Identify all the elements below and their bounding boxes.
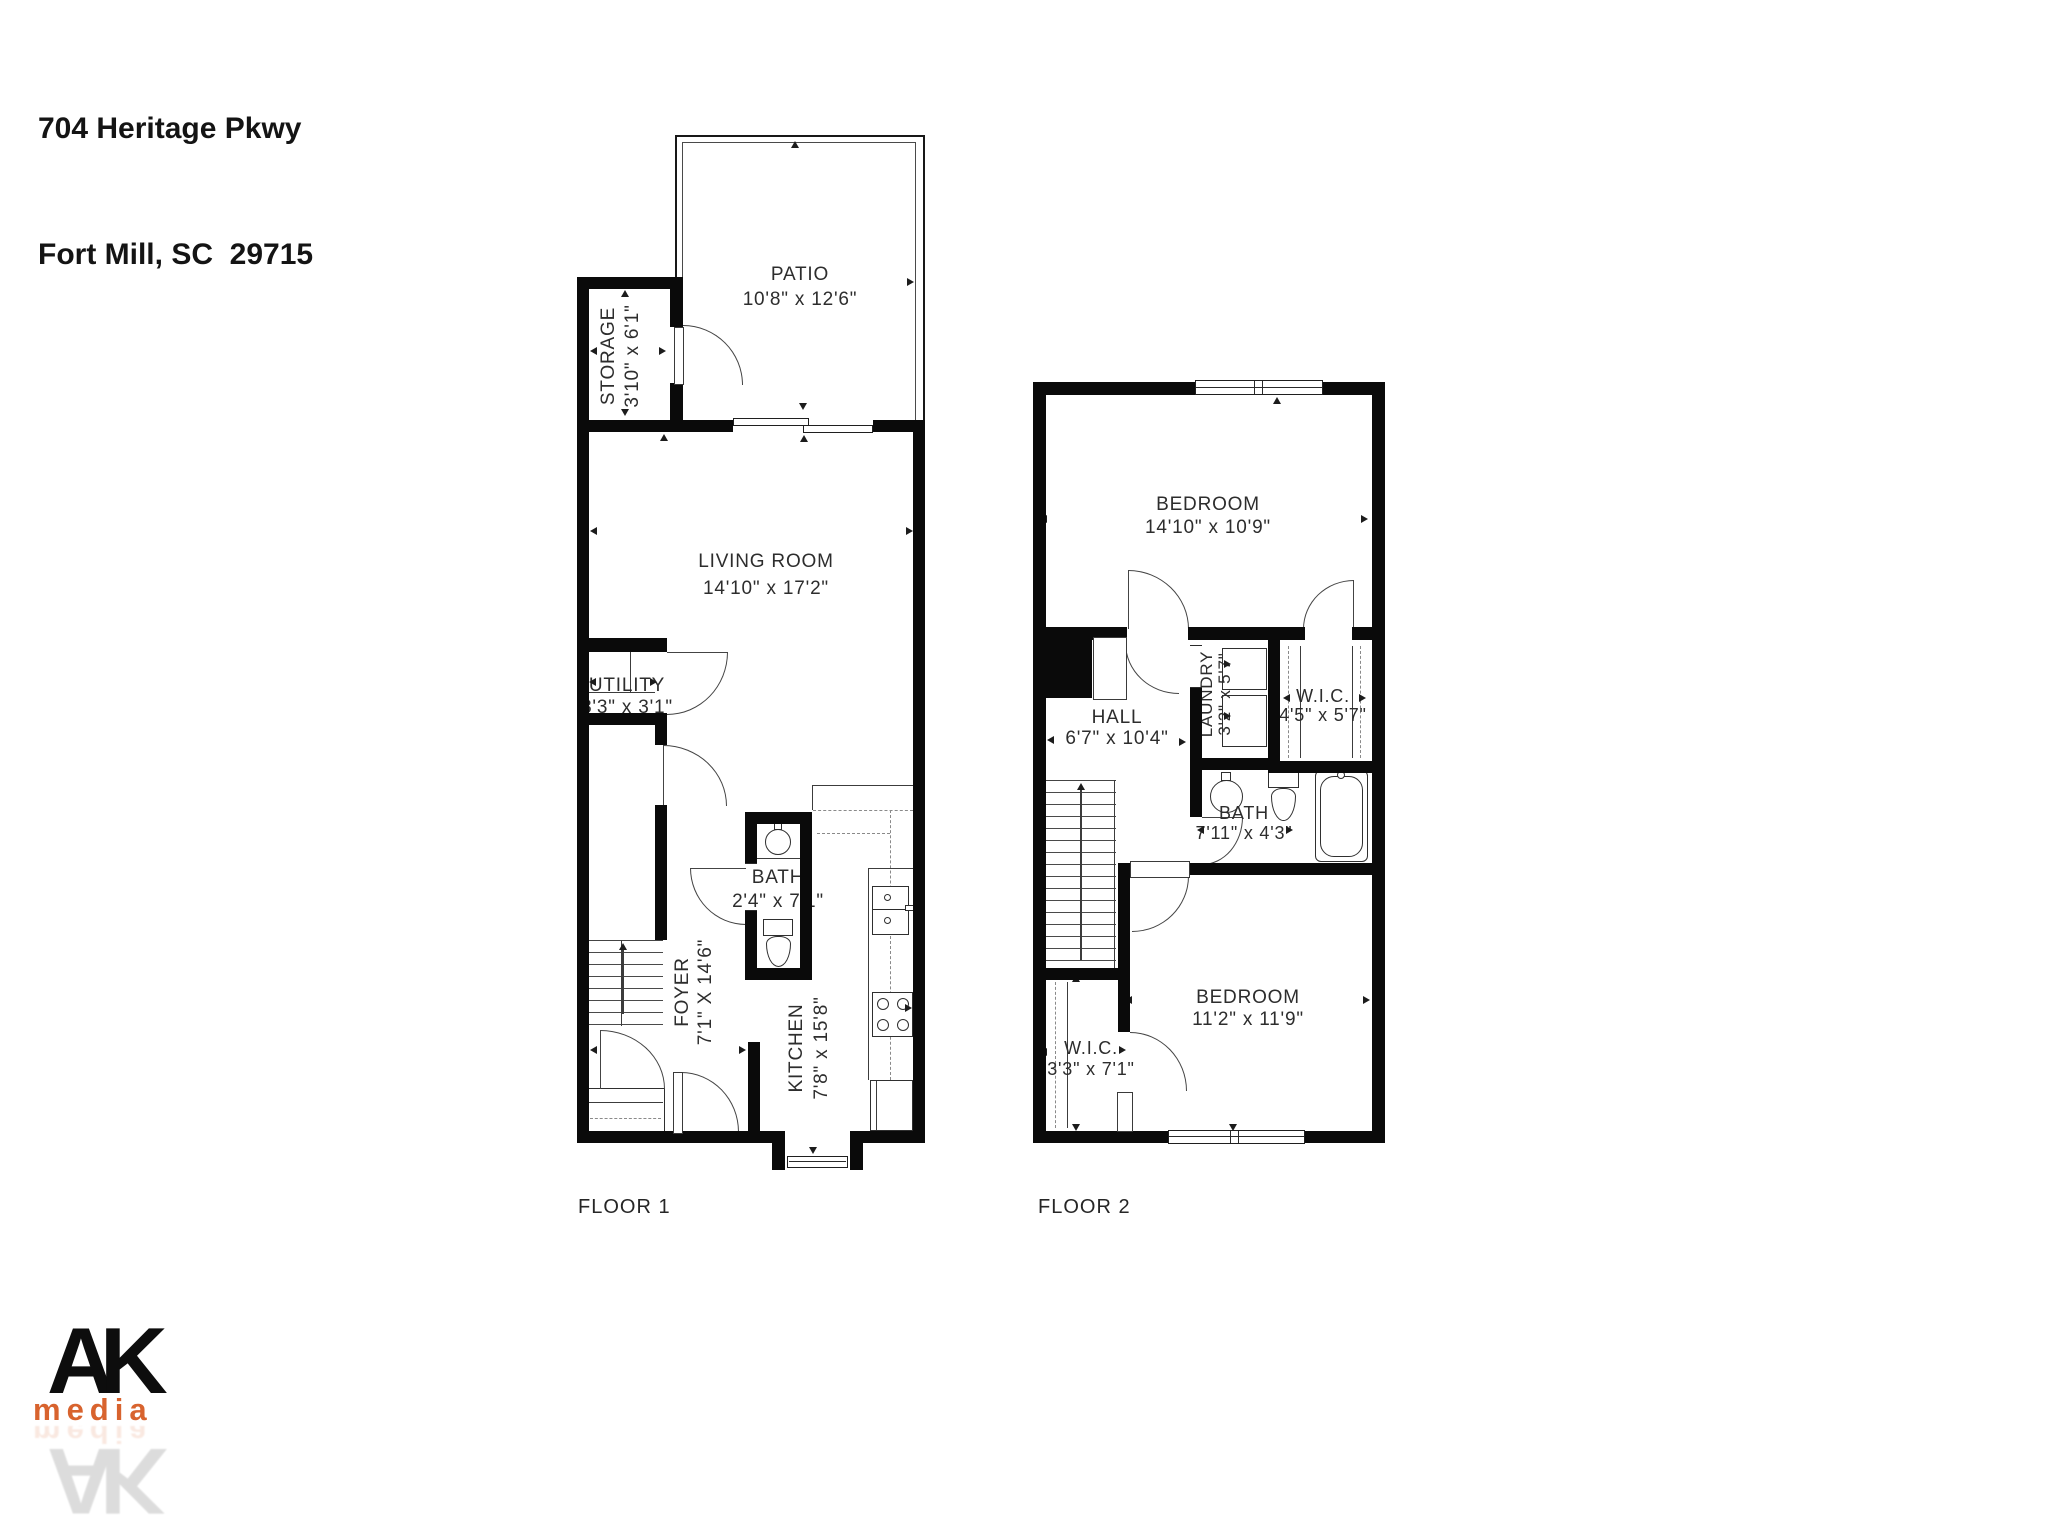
room-dims: 10'8" x 12'6"	[743, 287, 858, 312]
wall	[1305, 1131, 1385, 1143]
wall	[655, 713, 667, 745]
door-leaf	[673, 1072, 683, 1134]
stair-arrow-icon	[1077, 783, 1085, 790]
wall	[577, 277, 683, 289]
address-line2: Fort Mill, SC 29715	[38, 234, 313, 276]
wall	[745, 968, 812, 980]
dimension-arrow	[1273, 397, 1281, 404]
room-label-bath2: BATH 7'11" x 4'3"	[1196, 803, 1293, 843]
room-label-foyer: FOYER 7'1" X 14'6"	[671, 939, 717, 1045]
bathtub-inner	[1320, 776, 1363, 857]
door-leaf	[674, 327, 684, 385]
wall	[1352, 627, 1372, 640]
room-label-bedroom-bottom: BEDROOM 11'2" x 11'9"	[1192, 987, 1304, 1031]
door-arc	[1130, 1032, 1187, 1091]
wall-chase	[1046, 640, 1092, 698]
window-line	[1196, 387, 1322, 388]
window-mullion	[1262, 381, 1263, 394]
stair-arrow-icon	[619, 943, 627, 950]
dimension-arrow	[1179, 738, 1186, 746]
door-jamb	[745, 863, 757, 864]
wall	[577, 420, 733, 432]
floor1-label: FLOOR 1	[578, 1196, 671, 1219]
wall	[577, 277, 589, 1143]
wall	[1190, 758, 1280, 770]
window-mullion	[1238, 1131, 1239, 1143]
dimension-arrow	[590, 1046, 597, 1054]
logo-word-reflection: media	[33, 1426, 153, 1448]
room-dims: 7'1" X 14'6"	[694, 939, 717, 1045]
room-dims: 4'5" x 5'7"	[1279, 706, 1367, 725]
door-arc	[1125, 643, 1179, 694]
wall	[745, 911, 757, 968]
dimension-arrow	[590, 527, 597, 535]
wall	[1268, 640, 1280, 773]
wall	[1188, 863, 1372, 875]
room-label-storage: STORAGE 3'10" x 6'1"	[597, 304, 645, 407]
door-jamb	[1190, 645, 1202, 646]
dimension-arrow	[799, 403, 807, 410]
room-dims: 3'3" x 7'1"	[1047, 1059, 1135, 1080]
door-arc	[600, 1030, 665, 1089]
sliding-door	[733, 418, 809, 426]
coat-closet	[588, 1088, 665, 1134]
dimension-arrow	[1047, 736, 1054, 744]
window-line	[1169, 1136, 1304, 1137]
wall	[800, 812, 812, 980]
toilet-tank	[763, 919, 793, 936]
dimension-arrow	[650, 678, 657, 686]
stair-arrow-shaft	[1080, 790, 1082, 960]
dimension-arrow	[1224, 712, 1231, 720]
dimension-arrow	[1197, 826, 1204, 834]
window-mullion	[1254, 381, 1255, 394]
dimension-arrow	[800, 435, 808, 442]
door-arc	[667, 652, 728, 715]
dimension-arrow	[1283, 694, 1290, 702]
sliding-door	[803, 425, 873, 433]
door-arc	[1128, 570, 1189, 629]
wall	[1188, 627, 1305, 640]
dimension-arrow	[791, 141, 799, 148]
door-leaf	[1117, 1092, 1133, 1132]
counter-edge	[812, 785, 913, 786]
logo: AK media AK media	[33, 1318, 223, 1448]
refrigerator-door-line	[876, 1081, 877, 1130]
entry-step-line	[789, 1161, 846, 1162]
wall	[913, 420, 925, 1143]
door-arc	[681, 1072, 739, 1132]
dimension-arrow	[659, 347, 666, 355]
room-name: LIVING ROOM	[698, 548, 833, 575]
room-name: STORAGE	[597, 304, 621, 407]
address-line1: 704 Heritage Pkwy	[38, 108, 313, 150]
dimension-arrow	[906, 527, 913, 535]
vanity-line	[757, 858, 800, 859]
wall	[577, 638, 667, 652]
kitchen-sink	[872, 886, 909, 935]
wall	[655, 805, 667, 940]
wall	[850, 1143, 863, 1170]
logo-reflection: AK media	[33, 1426, 223, 1524]
logo-word: media	[33, 1394, 153, 1425]
burner	[877, 998, 889, 1010]
wall	[745, 812, 812, 824]
room-name: HALL	[1065, 707, 1168, 728]
door-jamb	[745, 910, 757, 911]
door-arc	[1132, 876, 1189, 932]
stair-arrow-shaft	[622, 950, 624, 1014]
room-name: BATH	[1196, 803, 1293, 823]
wall	[1046, 968, 1130, 980]
room-label-wic-top: W.I.C. 4'5" x 5'7"	[1279, 687, 1367, 725]
dimension-arrow	[809, 1147, 817, 1154]
sink-faucet	[774, 823, 782, 830]
dimension-arrow	[1072, 1124, 1080, 1131]
cabinet-dashed-line	[817, 833, 890, 834]
room-name: PATIO	[743, 262, 858, 287]
door-jamb	[1190, 687, 1202, 688]
dimension-arrow	[1119, 1046, 1126, 1054]
wall	[670, 383, 683, 420]
floor-plan-page: 704 Heritage Pkwy Fort Mill, SC 29715	[0, 0, 2048, 1447]
dimension-arrow	[739, 1046, 746, 1054]
window	[1168, 1130, 1305, 1144]
room-dims: 11'2" x 11'9"	[1192, 1009, 1304, 1031]
burner	[877, 1019, 889, 1031]
dimension-arrow	[905, 1004, 912, 1012]
room-label-patio: PATIO 10'8" x 12'6"	[743, 262, 858, 312]
cabinet-dashed-line	[813, 810, 913, 811]
toilet-bowl	[766, 936, 791, 967]
wall	[670, 289, 683, 327]
sink-fixture	[765, 829, 791, 855]
dimension-arrow	[621, 290, 629, 297]
counter-edge	[868, 868, 913, 869]
room-name: KITCHEN	[784, 996, 809, 1099]
wall	[772, 1143, 785, 1170]
logo-initials-reflection: AK	[47, 1438, 153, 1524]
wall	[1033, 1131, 1168, 1143]
counter-edge	[812, 785, 813, 810]
room-name: BEDROOM	[1192, 987, 1304, 1009]
room-label-wic-bottom: W.I.C. 3'3" x 7'1"	[1047, 1038, 1135, 1080]
dimension-arrow	[590, 347, 597, 355]
room-name: FOYER	[671, 939, 694, 1045]
burner	[897, 1019, 909, 1031]
wall	[1190, 770, 1202, 817]
room-dims: 14'10" x 17'2"	[698, 575, 833, 602]
closet-shelf-line	[588, 1102, 663, 1103]
wall	[1033, 382, 1046, 1143]
wall	[850, 1131, 925, 1143]
floor2-label: FLOOR 2	[1038, 1196, 1131, 1219]
stair-rail	[1114, 780, 1115, 970]
closet-rod-line	[590, 1118, 661, 1119]
sink-faucet	[1221, 772, 1231, 781]
wall	[1372, 382, 1385, 1143]
room-label-kitchen: KITCHEN 7'8" x 15'8"	[784, 996, 834, 1099]
room-dims: 7'8" x 15'8"	[809, 996, 834, 1099]
dimension-arrow	[907, 278, 914, 286]
door-arc	[1303, 580, 1354, 629]
dimension-arrow	[1361, 515, 1368, 523]
entry-step	[787, 1156, 848, 1168]
kitchen-sink-divider	[873, 909, 908, 910]
window-mullion	[1230, 1131, 1231, 1143]
room-dims: 14'10" x 10'9"	[1145, 516, 1271, 539]
wall	[748, 1042, 760, 1131]
room-label-hall: HALL 6'7" x 10'4"	[1065, 707, 1168, 749]
sink-drain	[884, 894, 891, 901]
dimension-arrow	[589, 678, 596, 686]
dimension-arrow	[1286, 826, 1293, 834]
dimension-arrow	[621, 409, 629, 416]
room-dims: 6'7" x 10'4"	[1065, 728, 1168, 749]
door-leaf	[1130, 861, 1190, 878]
dimension-arrow	[660, 434, 668, 441]
dimension-arrow	[1359, 694, 1366, 702]
room-dims: 7'11" x 4'3"	[1196, 823, 1293, 843]
dimension-arrow	[1363, 996, 1370, 1004]
room-label-living-room: LIVING ROOM 14'10" x 17'2"	[698, 548, 833, 602]
counter-edge	[868, 868, 869, 1080]
room-label-bedroom-top: BEDROOM 14'10" x 10'9"	[1145, 493, 1271, 539]
room-name: W.I.C.	[1279, 687, 1367, 706]
dimension-arrow	[1224, 660, 1231, 668]
wall	[1033, 382, 1195, 395]
wall	[1280, 761, 1372, 773]
property-address: 704 Heritage Pkwy Fort Mill, SC 29715	[38, 24, 313, 360]
toilet-tank	[1268, 772, 1299, 788]
wall	[1118, 875, 1130, 1032]
sink-drain	[884, 917, 891, 924]
door-leaf	[1093, 637, 1127, 700]
door-arc	[663, 745, 727, 806]
room-name: BEDROOM	[1145, 493, 1271, 516]
wall	[577, 713, 667, 725]
cabinet-dashed-line	[890, 810, 891, 1080]
room-dims: 3'10" x 6'1"	[621, 304, 645, 407]
